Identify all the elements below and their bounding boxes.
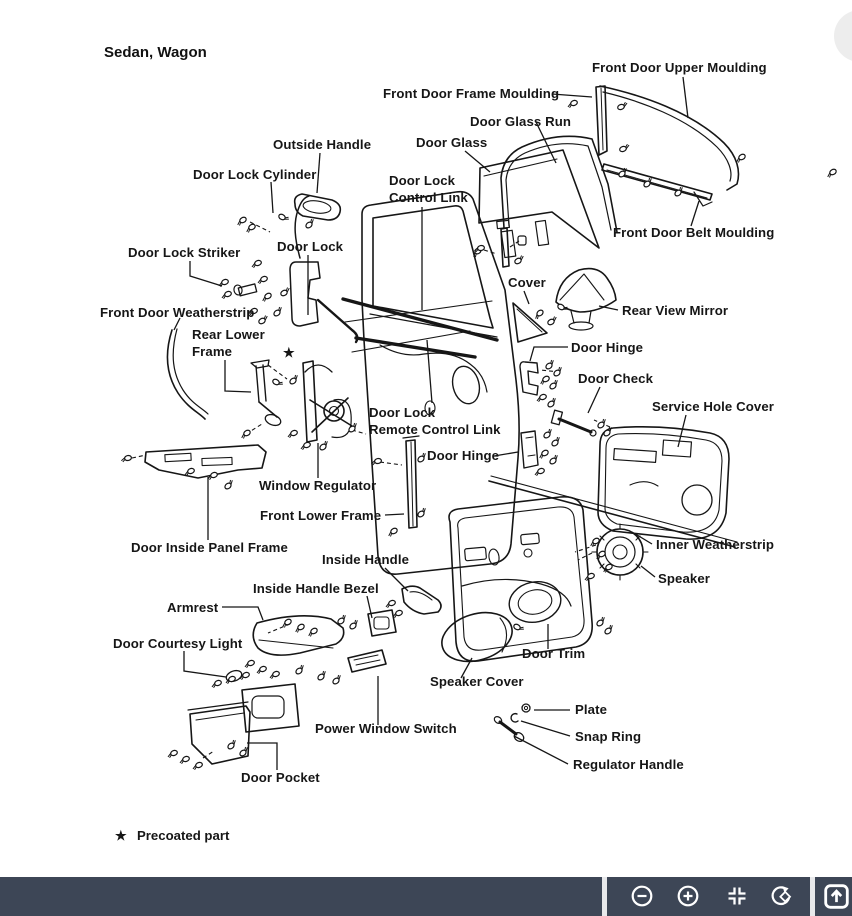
label-front-lower-frame: Front Lower Frame [260,508,381,523]
label-door-pocket: Door Pocket [241,770,320,785]
label-rear-lower-frame-1: Rear Lower [192,327,265,342]
precoated-star-marker: ★ [283,345,295,360]
label-front-door-belt-moulding: Front Door Belt Moulding [613,225,774,240]
box-arrow-up-icon [823,883,850,910]
exploded-parts-diagram: Sedan, Wagon Front Door Upper Moulding F… [0,0,852,872]
plus-circle-icon [676,884,700,908]
footnote-text: Precoated part [137,828,230,843]
label-plate: Plate [575,702,607,717]
armrest-drawing [253,616,343,655]
label-outside-handle: Outside Handle [273,137,371,152]
cover-drawing [513,303,547,342]
label-front-door-frame-moulding: Front Door Frame Moulding [383,86,559,101]
label-front-door-upper-moulding: Front Door Upper Moulding [592,60,767,75]
label-inside-handle: Inside Handle [322,552,409,567]
label-regulator-handle: Regulator Handle [573,757,684,772]
zoom-out-button[interactable] [629,883,655,909]
door-lock-drawing [290,196,357,342]
label-power-window-switch: Power Window Switch [315,721,457,736]
front-door-frame-moulding-drawing [596,86,607,155]
door-glass-drawing [479,150,599,258]
footnote-star: ★ [115,828,127,843]
label-door-hinge-upper: Door Hinge [571,340,643,355]
front-lower-frame-drawing [403,436,419,528]
label-cover: Cover [508,275,546,290]
label-front-door-weatherstrip: Front Door Weatherstrip [100,305,254,320]
rear-view-mirror-drawing [556,269,616,330]
label-service-hole-cover: Service Hole Cover [652,399,774,414]
open-external-button[interactable] [822,882,850,910]
label-door-glass: Door Glass [416,135,487,150]
label-inner-weatherstrip: Inner Weatherstrip [656,537,774,552]
viewer-page: Sedan, Wagon Front Door Upper Moulding F… [0,0,852,916]
fit-to-screen-button[interactable] [724,883,750,909]
label-door-check: Door Check [578,371,654,386]
label-door-lock-striker: Door Lock Striker [128,245,240,260]
label-door-lock-control-link-1: Door Lock [389,173,456,188]
label-armrest: Armrest [167,600,219,615]
label-door-glass-run: Door Glass Run [470,114,571,129]
label-rear-view-mirror: Rear View Mirror [622,303,728,318]
door-hinge-lower-drawing [521,431,538,468]
snap-ring-drawing [511,714,518,722]
label-rear-lower-frame-2: Frame [192,344,232,359]
label-door-courtesy-light: Door Courtesy Light [113,636,243,651]
door-trim-drawing [449,497,592,661]
page-title: Sedan, Wagon [104,44,207,61]
label-window-regulator: Window Regulator [259,478,376,493]
viewer-toolbar [0,877,852,916]
label-door-inside-panel-frame: Door Inside Panel Frame [131,540,288,555]
label-door-lock-remote-control-link-1: Door Lock [369,405,436,420]
label-snap-ring: Snap Ring [575,729,641,744]
rear-lower-frame-drawing [251,360,282,427]
front-door-belt-moulding-drawing [602,164,712,206]
label-inside-handle-bezel: Inside Handle Bezel [253,581,379,596]
label-door-lock: Door Lock [277,239,344,254]
toolbar-separator [602,877,607,916]
label-door-lock-control-link-2: Control Link [389,190,468,205]
plate-drawing [522,704,530,712]
rotate-button[interactable] [768,883,794,909]
label-door-lock-remote-control-link-2: Remote Control Link [369,422,501,437]
minus-circle-icon [630,884,654,908]
door-hinge-upper-drawing [520,362,538,395]
door-check-drawing [551,410,596,436]
power-window-switch-drawing [348,650,386,672]
speaker-cover-drawing [436,604,518,669]
front-door-weatherstrip-drawing [167,329,208,419]
label-door-lock-cylinder: Door Lock Cylinder [193,167,316,182]
window-regulator-drawing [303,361,352,442]
door-lock-striker-drawing [233,284,257,296]
label-door-hinge-lower: Door Hinge [427,448,499,463]
outside-handle-drawing [295,194,341,220]
label-speaker: Speaker [658,571,710,586]
compress-arrows-icon [725,884,749,908]
part-labels: Sedan, Wagon Front Door Upper Moulding F… [100,44,774,843]
label-speaker-cover: Speaker Cover [430,674,524,689]
zoom-in-button[interactable] [675,883,701,909]
toolbar-separator [810,877,815,916]
inside-handle-bezel-drawing [368,610,396,636]
rotate-arrow-diamond-icon [769,884,793,908]
door-inside-panel-frame-drawing [145,445,266,478]
label-door-trim: Door Trim [522,646,585,661]
